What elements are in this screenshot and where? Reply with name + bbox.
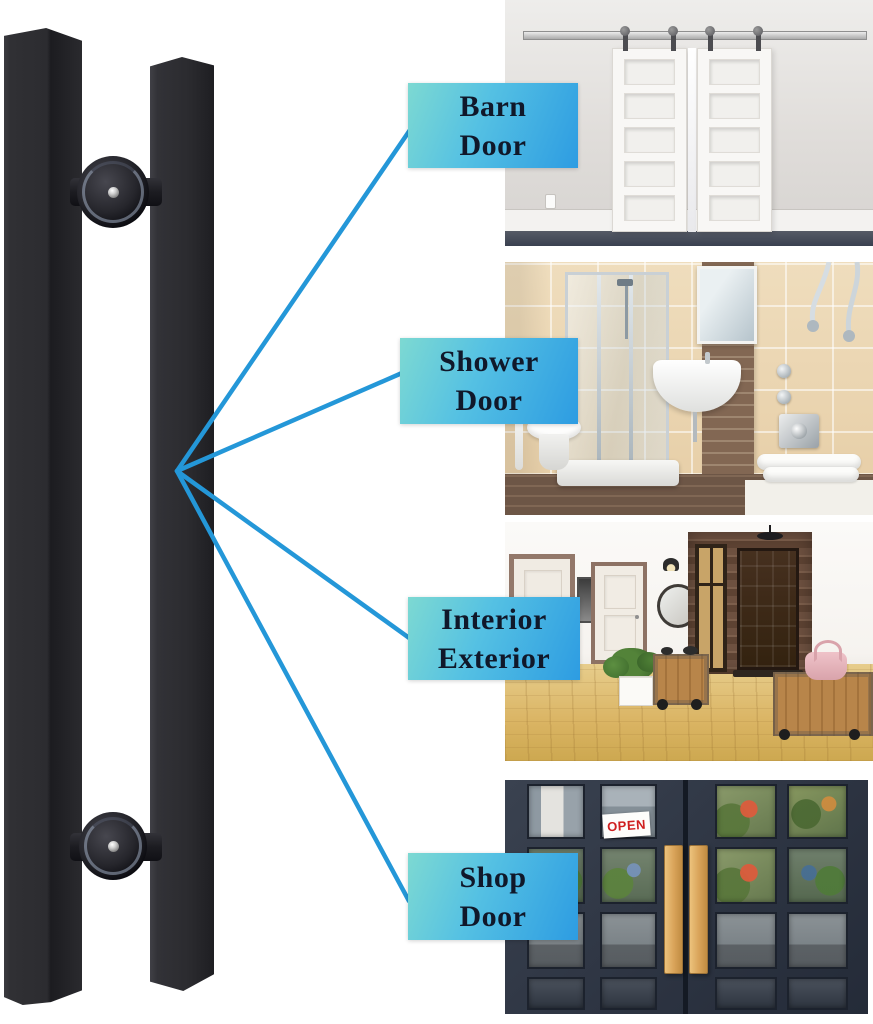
door-hanger — [671, 33, 676, 51]
ceiling-lamp — [757, 532, 783, 540]
planter-box — [619, 676, 653, 706]
handle-bottom-standoff-disc — [79, 812, 147, 880]
glass-pane — [715, 847, 777, 904]
door-meeting-gap — [683, 780, 688, 1014]
wall-outlet — [545, 194, 556, 209]
wooden-pull-handle — [664, 845, 683, 974]
label-shop-door: Shop Door — [408, 853, 578, 940]
glass-pane — [600, 977, 657, 1010]
sliding-rail — [523, 31, 867, 40]
handle-top-standoff-disc — [77, 156, 149, 228]
label-line: Barn — [459, 87, 526, 126]
glass-pane — [600, 912, 657, 969]
shower-valve — [777, 364, 791, 378]
shower-head — [617, 279, 633, 286]
mirror-cabinet — [697, 266, 757, 344]
shower-hoses — [771, 262, 871, 357]
glass-pane — [600, 847, 657, 904]
door-hanger — [756, 33, 761, 51]
shower-pipe — [625, 281, 628, 339]
label-line: Shower — [439, 342, 539, 381]
label-line: Door — [460, 126, 527, 165]
barn-door-right-panel — [697, 48, 772, 232]
label-barn-door: Barn Door — [408, 83, 578, 168]
glass-pane — [715, 784, 777, 839]
shower-tray — [557, 460, 679, 486]
shower-valve — [777, 390, 791, 404]
label-interior-exterior: Interior Exterior — [408, 597, 580, 680]
label-line: Shop — [459, 858, 526, 897]
label-shower-door: Shower Door — [400, 338, 578, 424]
counter — [745, 480, 873, 515]
label-line: Interior — [441, 600, 547, 639]
faucet — [705, 352, 710, 364]
screw-icon — [108, 187, 119, 198]
door-knob — [635, 615, 639, 619]
glass-pane — [715, 912, 777, 969]
glass-pane — [787, 912, 848, 969]
open-sign: OPEN — [602, 811, 651, 838]
glass-pane — [527, 977, 585, 1010]
door-gap — [688, 48, 696, 232]
front-door — [737, 548, 799, 670]
wall-sconce — [663, 558, 679, 571]
product-infographic: OPEN Barn Door Shower Door Interior Exte… — [0, 0, 873, 1024]
towel — [763, 467, 859, 482]
floor — [505, 231, 873, 246]
glass-pane — [715, 977, 777, 1010]
wooden-crate — [653, 654, 709, 705]
glass-pane — [527, 784, 585, 839]
wooden-pull-handle — [689, 845, 708, 974]
sidelight-window — [695, 544, 727, 672]
label-line: Door — [456, 381, 523, 420]
handbag — [805, 652, 847, 680]
glass-pane — [787, 977, 848, 1010]
door-hanger — [623, 33, 628, 51]
door-hanger — [708, 33, 713, 51]
label-line: Door — [460, 897, 527, 936]
barn-door-left-panel — [612, 48, 687, 232]
glass-pane — [787, 847, 848, 904]
mixer-plate — [779, 414, 819, 448]
wooden-crate — [773, 672, 873, 736]
label-line: Exterior — [438, 639, 550, 678]
glass-pane — [787, 784, 848, 839]
screw-icon — [108, 841, 119, 852]
sink-pipe — [693, 412, 697, 442]
